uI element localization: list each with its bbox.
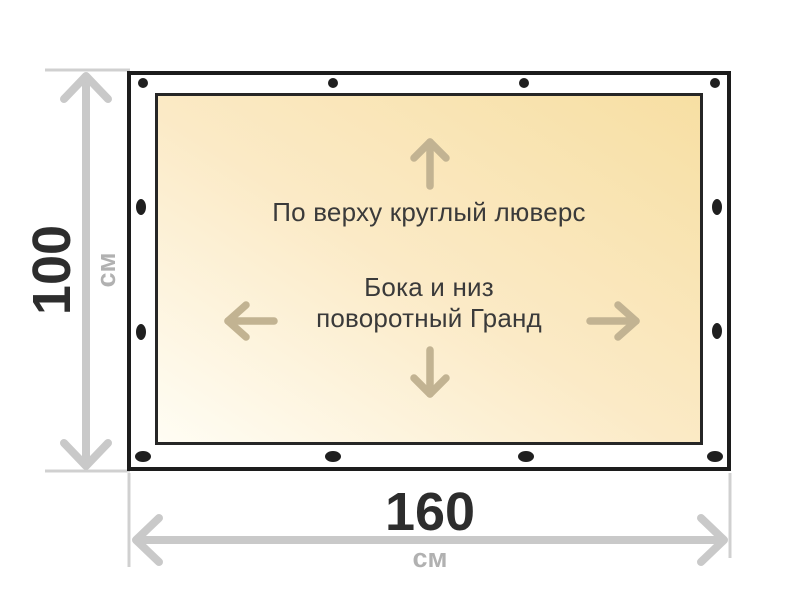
- width-dimension-value: 160: [330, 482, 530, 542]
- arrow-up-icon: [410, 138, 450, 190]
- grommet-dot: [710, 78, 720, 88]
- grommet-dot: [138, 78, 148, 88]
- grommet-dot: [712, 199, 722, 215]
- grommet-dot: [707, 451, 723, 462]
- grommet-dot: [518, 451, 534, 462]
- grommet-dot: [712, 323, 722, 339]
- grommet-dot: [519, 78, 529, 88]
- grommet-dot: [135, 451, 151, 462]
- grommet-dot: [328, 78, 338, 88]
- grommet-dot: [325, 451, 341, 462]
- grommet-note-top: По верху круглый люверс: [158, 197, 700, 228]
- banner-print-area: По верху круглый люверс Бока и низ повор…: [155, 93, 703, 445]
- height-dimension-value: 100: [22, 220, 82, 320]
- height-dimension-unit: см: [91, 240, 121, 300]
- grommet-dot: [136, 199, 146, 215]
- banner-outline: По верху круглый люверс Бока и низ повор…: [127, 71, 731, 471]
- grommet-dot: [136, 324, 146, 340]
- grommet-note-sides: Бока и низ поворотный Гранд: [158, 272, 700, 334]
- width-dimension-unit: см: [380, 543, 480, 573]
- banner-spec-diagram: По верху круглый люверс Бока и низ повор…: [0, 0, 800, 600]
- grommet-note-sides-line2: поворотный Гранд: [158, 303, 700, 334]
- grommet-note-sides-line1: Бока и низ: [158, 272, 700, 303]
- arrow-down-icon: [410, 346, 450, 398]
